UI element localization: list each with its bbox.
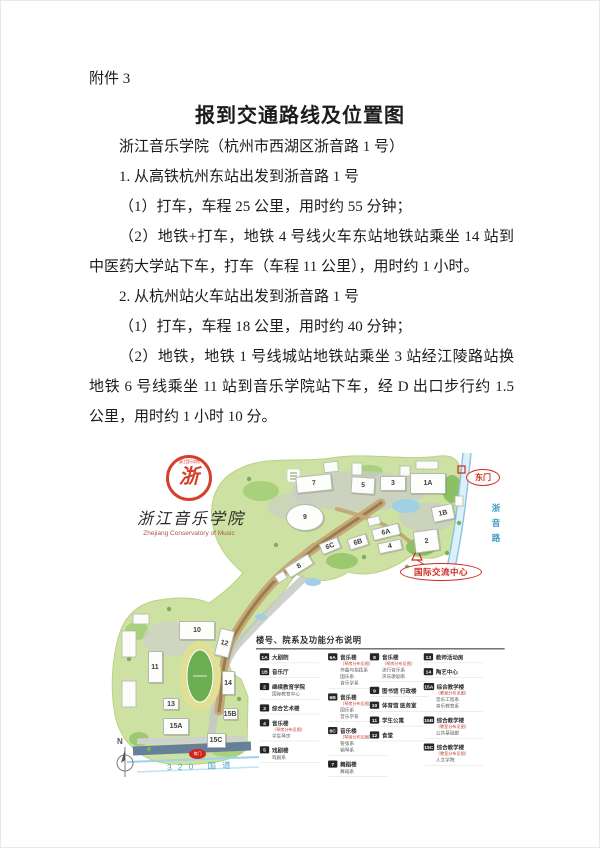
legend-item-9: 9图书馆 行政楼: [370, 686, 429, 696]
legend-item-15B: 15B综合教学楼（教室分布见图）公共基础部: [424, 716, 483, 739]
building-9: 9: [286, 504, 324, 531]
legend-building-name: 音乐楼: [272, 719, 289, 727]
legend-building-name: 陶艺中心: [436, 668, 458, 676]
legend-department: 舞蹈系: [340, 768, 387, 775]
paragraph: 2. 从杭州站火车站出发到浙音路 1 号: [89, 282, 514, 312]
paragraph: 1. 从高铁杭州东站出发到浙音路 1 号: [89, 162, 514, 192]
legend-badge: 9: [370, 687, 379, 694]
south-gate-marker: 南门: [189, 749, 206, 759]
legend-item-14: 14陶艺中心: [424, 668, 483, 678]
legend-building-name: 音乐楼: [340, 693, 357, 701]
legend-badge: 7: [328, 761, 337, 768]
legend-item-8: 8音乐楼（琴房分布见图）流行音乐系声乐歌剧系: [370, 653, 429, 682]
legend-building-name: 大剧院: [272, 653, 289, 661]
legend-department: 音乐教育系: [436, 703, 483, 710]
legend-divider: [256, 648, 505, 649]
legend-item-1B: 1B音乐厅: [260, 668, 319, 678]
building-14: 14: [222, 671, 235, 695]
campus-map: 浙江音乐学院 浙 浙江音乐学院 Zhejiang Conservatory of…: [109, 449, 569, 794]
legend-title: 楼号、院系及功能分布说明: [256, 634, 515, 646]
page-title: 报到交通路线及位置图: [1, 99, 599, 128]
legend-item-13: 13教师活动房: [424, 653, 483, 663]
legend-badge: 14: [424, 668, 433, 675]
building-1A: 1A: [410, 473, 446, 494]
legend-item-12: 12食堂: [370, 731, 429, 741]
legend-department: 流行音乐系: [382, 666, 429, 673]
document-page: 附件 3 报到交通路线及位置图 浙江音乐学院（杭州市西湖区浙音路 1 号） 1.…: [0, 0, 600, 848]
map-legend: 楼号、院系及功能分布说明 1A大剧院1B音乐厅2继续教育学院国际教育中心3综合艺…: [256, 634, 515, 763]
paragraph: （2）地铁+打车，地铁 4 号线火车东站地铁站乘坐 14 站到中医药大学站下车，…: [89, 222, 514, 282]
zheyin-road-char: 路: [490, 531, 502, 546]
compass-north-label: N: [117, 737, 123, 746]
paragraph: 浙江音乐学院（杭州市西湖区浙音路 1 号）: [89, 132, 514, 162]
legend-badge: 3: [260, 704, 269, 711]
legend-building-name: 音乐楼: [340, 653, 357, 661]
legend-building-name: 综合教学楼: [437, 682, 465, 690]
legend-building-name: 音乐楼: [382, 653, 399, 661]
building-3: 3: [380, 476, 406, 491]
legend-item-2: 2继续教育学院国际教育中心: [260, 682, 319, 699]
legend-department: 戏剧系: [272, 754, 319, 761]
legend-building-name: 继续教育学院: [272, 682, 305, 690]
legend-department: 声乐歌剧系: [382, 673, 429, 680]
legend-badge: 8: [370, 653, 379, 660]
legend-badge: 10: [370, 702, 379, 709]
legend-item-15A: 15A综合教学楼（教室分布见图）音乐工程系音乐教育系: [424, 682, 483, 711]
attachment-label: 附件 3: [89, 67, 130, 88]
legend-column: 8音乐楼（琴房分布见图）流行音乐系声乐歌剧系9图书馆 行政楼10体育馆 医务室1…: [370, 653, 429, 746]
legend-building-name: 综合教学楼: [437, 743, 465, 751]
legend-building-name: 学生公寓: [382, 716, 404, 724]
legend-badge: 11: [370, 717, 379, 724]
legend-department: 公共基础部: [436, 730, 483, 737]
legend-building-name: 戏剧楼: [272, 746, 289, 754]
legend-column: 1A大剧院1B音乐厅2继续教育学院国际教育中心3综合艺术楼4音乐楼（琴房分布见图…: [260, 653, 319, 767]
route-320-label: 320 国道: [167, 759, 237, 773]
legend-building-name: 综合艺术楼: [272, 704, 300, 712]
building-15B: 15B: [223, 708, 238, 720]
legend-badge: 2: [260, 683, 269, 690]
legend-badge: 6A: [328, 653, 337, 660]
building-15C: 15C: [207, 733, 226, 748]
legend-item-11: 11学生公寓: [370, 716, 429, 726]
building-11: 11: [148, 651, 163, 683]
zheyin-road-char: 浙: [490, 501, 502, 516]
paragraph: （1）打车，车程 18 公里，用时约 40 分钟；: [89, 312, 514, 342]
school-logo: 浙江音乐学院 浙 浙江音乐学院 Zhejiang Conservatory of…: [137, 455, 241, 537]
seal-monogram: 浙: [169, 467, 209, 487]
legend-department: 国际教育中心: [272, 691, 319, 698]
legend-badge: 12: [370, 731, 379, 738]
legend-building-name: 图书馆 行政楼: [382, 686, 417, 694]
school-name-cn: 浙江音乐学院: [137, 505, 241, 529]
legend-department: 钢琴系: [340, 747, 387, 754]
building-2: 2: [412, 528, 440, 553]
legend-badge: 15C: [424, 743, 434, 750]
seal-ring-text: 浙江音乐学院: [169, 459, 209, 465]
legend-badge: 6C: [328, 727, 337, 734]
legend-item-1A: 1A大剧院: [260, 653, 319, 663]
legend-building-name: 食堂: [382, 731, 393, 739]
building-13: 13: [163, 698, 179, 710]
building-7: 7: [295, 473, 333, 494]
legend-building-name: 体育馆 医务室: [382, 701, 417, 709]
legend-item-10: 10体育馆 医务室: [370, 701, 429, 711]
legend-column: 13教师活动房14陶艺中心15A综合教学楼（教室分布见图）音乐工程系音乐教育系1…: [424, 653, 483, 770]
legend-badge: 15B: [424, 717, 434, 724]
legend-building-name: 教师活动房: [436, 653, 464, 661]
legend-building-name: 音乐厅: [272, 668, 289, 676]
legend-item-3: 3综合艺术楼: [260, 704, 319, 714]
school-seal-icon: 浙江音乐学院 浙: [166, 455, 212, 501]
legend-item-5: 5戏剧楼戏剧系: [260, 746, 319, 763]
body-text: 浙江音乐学院（杭州市西湖区浙音路 1 号） 1. 从高铁杭州东站出发到浙音路 1…: [89, 132, 514, 432]
zheyin-road-char: 音: [490, 516, 502, 531]
legend-badge: 5: [260, 746, 269, 753]
international-exchange-center-label: 国际交流中心: [400, 563, 482, 581]
legend-badge: 13: [424, 653, 433, 660]
zheyin-road-label: 浙音路: [490, 501, 502, 546]
building-5: 5: [350, 476, 375, 495]
legend-department: 学生琴房: [272, 732, 319, 739]
legend-item-15C: 15C综合教学楼（教室分布见图）人文学院: [424, 743, 483, 766]
building-10: 10: [179, 621, 215, 640]
legend-item-4: 4音乐楼（琴房分布见图）学生琴房: [260, 719, 319, 742]
legend-building-name: 音乐楼: [340, 726, 357, 734]
paragraph: （1）打车，车程 25 公里，用时约 55 分钟；: [89, 192, 514, 222]
legend-badge: 15A: [424, 683, 434, 690]
paragraph: （2）地铁，地铁 1 号线城站地铁站乘坐 3 站经江陵路站换地铁 6 号线乘坐 …: [89, 342, 514, 432]
legend-item-7: 7舞蹈楼舞蹈系: [328, 760, 387, 777]
legend-building-name: 舞蹈楼: [340, 760, 357, 768]
legend-building-name: 综合教学楼: [437, 716, 465, 724]
legend-badge: 4: [260, 719, 269, 726]
legend-badge: 1B: [260, 668, 269, 675]
building-15A: 15A: [163, 718, 189, 735]
school-name-en: Zhejiang Conservatory of Music: [137, 530, 241, 537]
legend-badge: 1A: [260, 653, 269, 660]
legend-department: 人文学院: [436, 757, 483, 764]
legend-department: 音乐工程系: [436, 696, 483, 703]
east-gate-label: 东门: [466, 469, 500, 486]
legend-badge: 6B: [328, 693, 337, 700]
